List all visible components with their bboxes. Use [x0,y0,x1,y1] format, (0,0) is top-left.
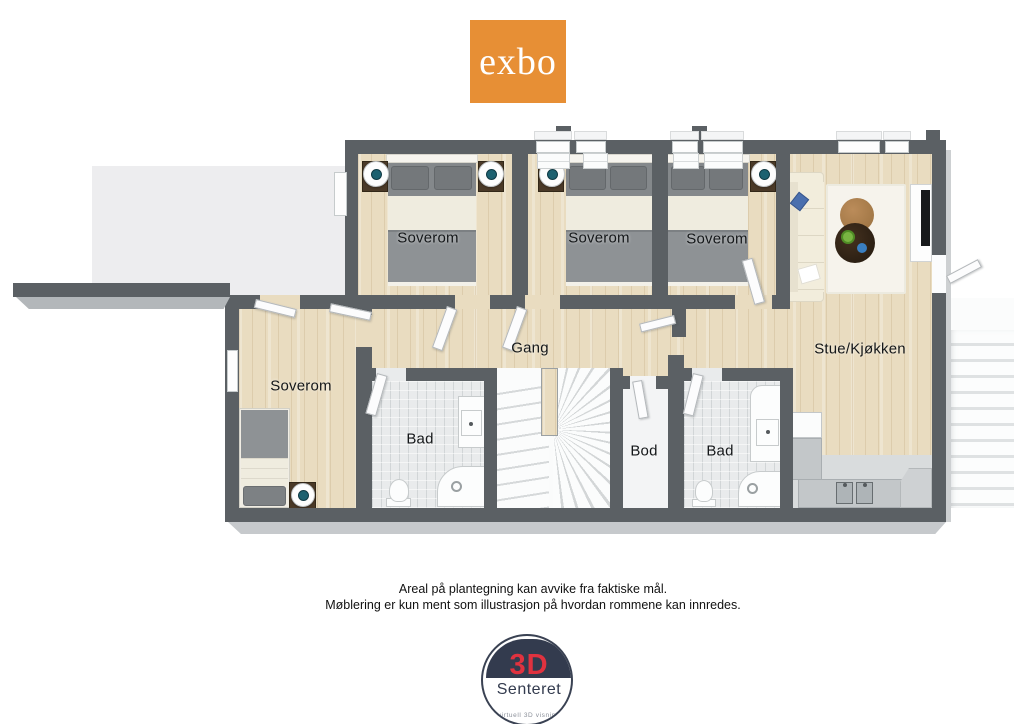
room-label-soverom-4: Soverom [270,378,331,395]
door-opening [932,255,946,293]
window [838,141,880,153]
window-sill [574,131,607,140]
lamp-icon [751,161,777,187]
faucet-icon [766,430,770,434]
kitchen-counter-left [788,438,822,480]
terrace [92,166,345,297]
door-opening [455,295,490,309]
exterior-staircase [948,298,1014,508]
pillow [434,166,472,190]
window [227,350,238,392]
window-sill [701,131,744,140]
toilet [389,479,409,502]
faucet-icon [863,483,867,487]
wall [610,368,623,508]
disclaimer-line-2: Møblering er kun ment som illustrasjon p… [283,597,783,613]
exbo-logo-text: exbo [479,40,557,84]
door [946,259,982,284]
dresser [583,153,608,169]
pillow [610,166,647,190]
tv [921,190,930,246]
bed-foot [566,282,652,286]
window [885,141,909,153]
pillow [569,166,606,190]
bed-foot [388,282,476,286]
pillow [671,166,705,190]
wall-shadow [946,150,951,522]
3d-senteret-logo-top: 3D [486,639,572,678]
dresser [704,153,743,169]
bowl-blue [857,243,867,253]
stair-void [541,368,558,436]
room-label-soverom-3: Soverom [686,231,747,248]
stair-flight-right [553,368,610,508]
room-label-bod: Bod [630,443,657,460]
bed-sheet [668,196,748,230]
bed-headboard [386,154,478,163]
3d-senteret-logo-tagline: virtuell 3D visning [483,704,573,722]
bed-sheet [566,196,652,230]
room-label-soverom-1: Soverom [397,230,458,247]
toilet [695,480,713,502]
wall [484,368,497,508]
window [334,172,347,216]
staircase [497,368,610,508]
room-label-stue-kjokken: Stue/Kjøkken [814,341,906,358]
stair-treads [948,330,1014,508]
3d-senteret-logo-3d: 3D [509,652,548,678]
wall [345,140,358,309]
room-label-bad-1: Bad [406,431,433,448]
wall [932,143,946,522]
lamp-icon [363,161,389,187]
wall [776,140,790,309]
wall [652,140,668,295]
exbo-logo: exbo [470,20,566,103]
door-opening [525,295,560,309]
lamp-icon [291,483,315,507]
floor-plan-canvas: exbo [0,0,1024,724]
dishwasher [788,412,822,438]
window-sill [883,131,911,140]
wall [512,140,528,295]
stair-landing [948,298,1014,330]
bed-foot [668,282,748,286]
window-sill [836,131,882,140]
shower [738,471,782,507]
pillow [709,166,743,190]
room-label-gang: Gang [511,340,549,357]
wall [13,283,230,297]
bed-sheet [241,458,288,486]
dresser [673,153,699,169]
dresser [537,153,570,169]
roof-stub [926,130,940,143]
wall [345,295,790,309]
bowl-green [841,230,855,244]
lamp-icon [478,161,504,187]
window [576,141,606,153]
window [672,141,698,153]
wall [225,508,946,522]
3d-senteret-logo: 3D Senteret virtuell 3D visning [481,634,573,724]
faucet-icon [469,422,473,426]
bed-sheet [388,196,476,230]
drain-icon [747,483,758,494]
window-sill [534,131,572,140]
bed-headboard [564,154,654,163]
disclaimer-line-1: Areal på plantegning kan avvike fra fakt… [283,581,783,597]
wall [225,297,239,522]
wall-shadow [228,522,946,534]
room-label-soverom-2: Soverom [568,230,629,247]
wall-shadow [16,297,230,309]
wall [780,368,793,508]
pillow [243,486,286,506]
window-sill [670,131,699,140]
pillow [391,166,429,190]
3d-senteret-logo-name: Senteret [483,681,573,699]
faucet-icon [843,483,847,487]
bed-duvet [241,410,288,458]
window [703,141,743,153]
window [536,141,570,153]
room-label-bad-2: Bad [706,443,733,460]
drain-icon [451,481,462,492]
coffee-table [835,223,875,263]
disclaimer: Areal på plantegning kan avvike fra fakt… [283,581,783,613]
